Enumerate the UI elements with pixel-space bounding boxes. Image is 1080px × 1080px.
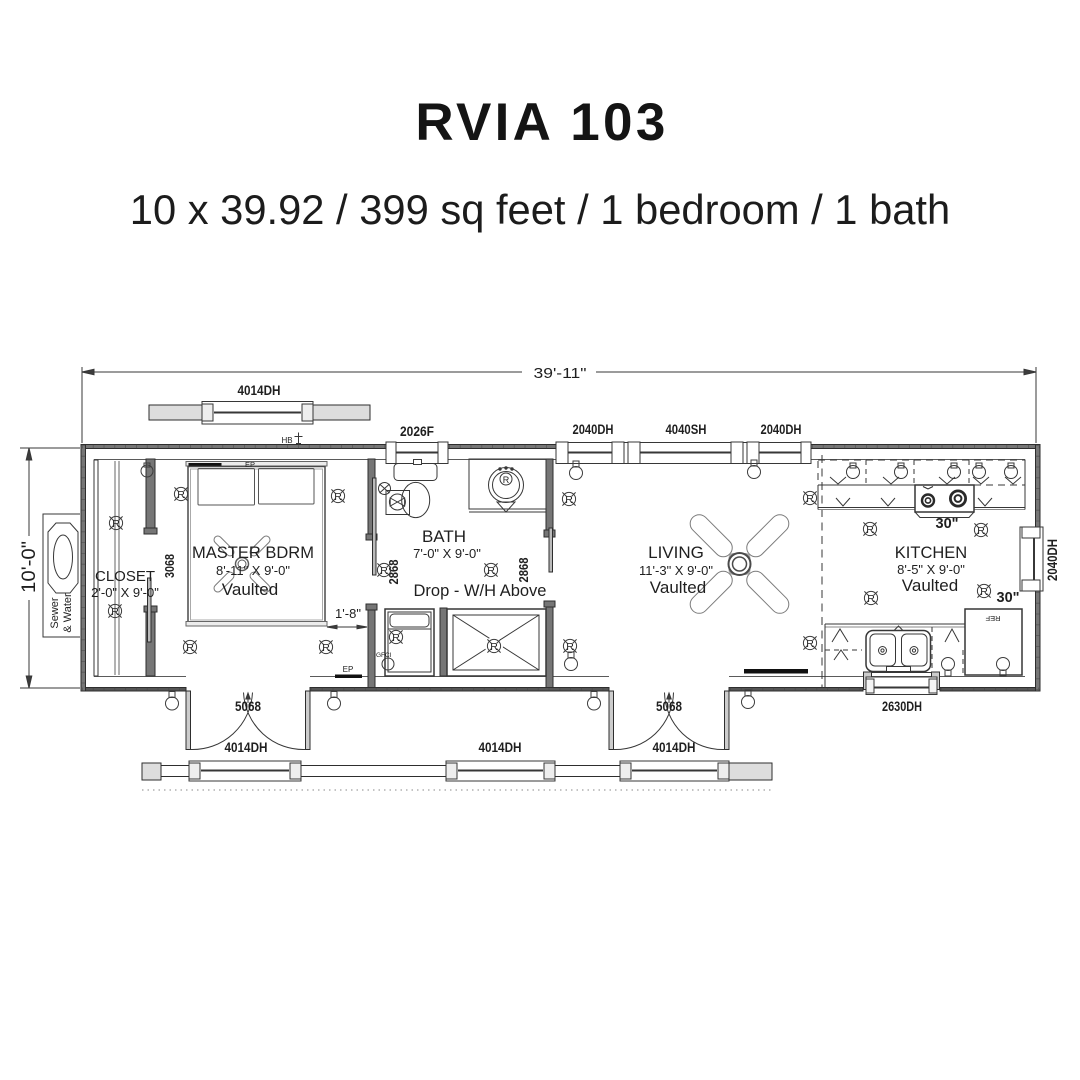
- svg-text:KITCHEN: KITCHEN: [895, 544, 967, 562]
- svg-text:2868: 2868: [516, 558, 531, 583]
- svg-text:7'-0" X 9'-0": 7'-0" X 9'-0": [413, 546, 481, 561]
- svg-text:1'-8": 1'-8": [335, 606, 361, 621]
- svg-text:4014DH: 4014DH: [238, 383, 281, 398]
- svg-text:2040DH: 2040DH: [1045, 539, 1060, 581]
- svg-text:LIVING: LIVING: [648, 543, 704, 562]
- svg-text:4014DH: 4014DH: [479, 740, 522, 755]
- svg-text:Sewer: Sewer: [49, 597, 61, 629]
- svg-text:8'-11" X 9'-0": 8'-11" X 9'-0": [216, 563, 290, 578]
- svg-text:REF: REF: [985, 614, 1000, 623]
- svg-text:& Water: & Water: [62, 593, 74, 633]
- svg-text:4014DH: 4014DH: [225, 740, 268, 755]
- svg-text:30": 30": [997, 589, 1020, 606]
- svg-text:RVIA 103: RVIA 103: [415, 93, 668, 152]
- svg-text:10 x 39.92 / 399 sq feet / 1 b: 10 x 39.92 / 399 sq feet / 1 bedroom / 1…: [130, 186, 950, 233]
- svg-text:8'-5" X 9'-0": 8'-5" X 9'-0": [897, 562, 965, 577]
- svg-text:GFCI: GFCI: [376, 652, 392, 659]
- svg-text:EP: EP: [343, 665, 354, 674]
- svg-text:5068: 5068: [235, 699, 261, 714]
- svg-text:3068: 3068: [162, 554, 177, 578]
- svg-text:Vaulted: Vaulted: [650, 578, 706, 597]
- svg-text:30": 30": [936, 515, 959, 532]
- svg-text:EP: EP: [245, 460, 255, 469]
- svg-text:HB: HB: [281, 436, 292, 445]
- svg-text:Vaulted: Vaulted: [902, 576, 958, 595]
- svg-text:11'-3" X 9'-0": 11'-3" X 9'-0": [639, 563, 713, 578]
- svg-text:Drop - W/H Above: Drop - W/H Above: [414, 582, 547, 600]
- svg-text:2040DH: 2040DH: [573, 422, 614, 437]
- svg-text:2630DH: 2630DH: [882, 699, 922, 714]
- svg-text:R: R: [503, 475, 510, 485]
- svg-text:2868: 2868: [386, 560, 401, 585]
- svg-text:2'-0" X 9'-0": 2'-0" X 9'-0": [91, 585, 159, 600]
- svg-text:2026F: 2026F: [400, 424, 434, 439]
- svg-text:39'-11": 39'-11": [534, 365, 587, 382]
- svg-text:Vaulted: Vaulted: [222, 580, 278, 599]
- svg-text:4014DH: 4014DH: [653, 740, 696, 755]
- svg-text:5068: 5068: [656, 699, 682, 714]
- svg-text:BATH: BATH: [422, 527, 466, 546]
- svg-text:4040SH: 4040SH: [666, 422, 707, 437]
- svg-text:CLOSET: CLOSET: [95, 568, 155, 585]
- svg-text:2040DH: 2040DH: [761, 422, 802, 437]
- svg-text:10'-0": 10'-0": [19, 541, 40, 593]
- svg-text:MASTER BDRM: MASTER BDRM: [192, 544, 314, 562]
